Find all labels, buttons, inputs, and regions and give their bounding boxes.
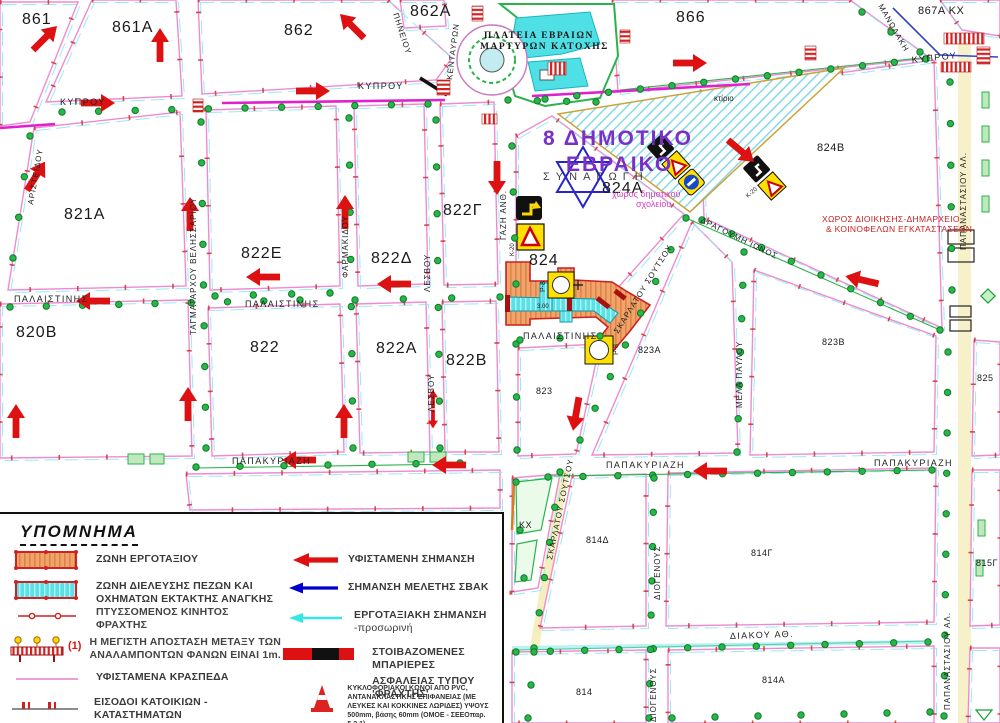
street-label: ΠΑΠΑΝΑΣΤΑΣΙΟΥ ΑΛ. — [959, 152, 968, 250]
legend-item-svak-signage: ΣΗΜΑΝΣΗ ΜΕΛΕΤΗΣ ΣΒΑΚ — [286, 580, 489, 596]
entrances-swatch — [10, 700, 80, 712]
school-name-line1: 8 ΔΗΜΟΤΙΚΟ — [543, 127, 693, 150]
street-label: ΠΑΛΑΙΣΤΙΝΗΣ — [14, 294, 89, 304]
street-label: ΠΑΠΑΝΑΣΤΑΣΙΟΥ ΑΛ. — [943, 612, 952, 710]
block-label: 823Β — [822, 337, 845, 347]
traffic-cone-icon — [308, 682, 335, 716]
cyan-arrow-left-icon — [286, 610, 344, 626]
street-label: ΜΕΛΑ ΠΑΥΛΟΥ — [735, 341, 744, 408]
street-label: ΛΕΣΒΟΥ — [427, 374, 436, 412]
block-label: ΚΧ — [519, 520, 532, 530]
work-zone-swatch — [14, 550, 80, 572]
street-label: ΔΙΟΓΕΝΟΥΣ — [649, 667, 658, 722]
block-label: 823Α — [638, 345, 661, 355]
street-label: ΠΑΠΑΚΥΡΙΑΖΗ — [232, 456, 311, 466]
street-label: ΔΙΟΓΕΝΟΥΣ — [653, 545, 662, 600]
block-label: 824 — [529, 252, 559, 269]
legend-item-temp-signage: ΕΡΓΟΤΑΞΙΑΚΗ ΣΗΜΑΝΣΗ -προσωρινή — [286, 610, 487, 635]
legend-item-ped-zone: ΖΩΝΗ ΔΙΕΛΕΥΣΗΣ ΠΕΖΩΝ ΚΑΙ ΟΧΗΜΑΤΩΝ ΕΚΤΑΚΤ… — [14, 580, 273, 606]
street-label: ΔΙΑΚΟΥ ΑΘ. — [730, 629, 794, 641]
sign-code-label: Ρ-8 — [613, 344, 620, 355]
block-label: 822Ε — [241, 245, 282, 262]
street-label: ΠΑΛΑΙΣΤΙΝΗΣ — [245, 299, 320, 309]
legend-item-number: (1) — [68, 640, 81, 652]
legend-item-work-zone: ΖΩΝΗ ΕΡΓΟΤΑΞΙΟΥ — [14, 550, 198, 572]
school-name-line2: ΕΒΡΑΙΚΟ — [566, 153, 673, 176]
curb-swatch — [14, 674, 80, 684]
block-label: 822 — [250, 339, 280, 356]
legend-panel: ΥΠΟΜΝΗΜΑ ΖΩΝΗ ΕΡΓΟΤΑΞΙΟΥ ΖΩΝΗ ΔΙΕΛΕΥΣΗΣ … — [0, 512, 504, 723]
street-label: ΓΑΖΗ ΑΝΘ. — [499, 190, 508, 240]
block-label: 861 — [22, 11, 52, 28]
legend-item-flashing-barrier: (1) Η ΜΕΓΙΣΤΗ ΑΠΟΣΤΑΣΗ ΜΕΤΑΞΥ ΤΩΝ ΑΝΑΛΑΜ… — [8, 634, 281, 664]
school-area-line2: σχολείου — [636, 199, 671, 209]
street-label: ΚΥΠΡΟΥ — [358, 81, 404, 91]
block-label: 821Α — [64, 206, 105, 223]
block-label: 820Β — [16, 324, 57, 341]
street-label: ΠΑΛΑΙΣΤΙΝΗΣ — [523, 331, 598, 341]
block-label: 822Β — [446, 352, 487, 369]
block-label: 822Δ — [371, 250, 412, 267]
street-label: ΤΑΓΜΑΤΑΡΧΟΥ ΒΕΛΗΣΣΑΡΙΟΥ — [189, 197, 198, 335]
block-label: 823 — [536, 386, 553, 396]
dimension-label: 3.00 — [537, 304, 549, 310]
block-label: 825 — [977, 373, 994, 383]
block-label: 822Α — [376, 340, 417, 357]
block-label: 814Γ — [751, 548, 773, 558]
school-area-line1: χώρος δημοτικού — [612, 189, 681, 199]
legend-item-traffic-cones: ΚΥΚΛΟΦΟΡΙΑΚΟΙ ΚΩΝΟΙ ΑΠΟ PVC, ΑΝΤΑΝΑΚΛΑΣΤ… — [308, 682, 502, 723]
block-label: 815Γ — [976, 558, 998, 568]
block-label: 866 — [676, 9, 706, 26]
green-diamond — [981, 289, 995, 303]
street-label: ΚΥΠΡΟΥ — [60, 97, 106, 107]
admin-area-line1: ΧΩΡΟΣ ΔΙΟΙΚΗΣΗΣ-ΔΗΜΑΡΧΕΙΟ — [822, 214, 960, 224]
block-label: 862 — [284, 22, 314, 39]
building-label: κτίριο — [714, 94, 734, 103]
block-label: 824Β — [817, 142, 845, 154]
legend-title: ΥΠΟΜΝΗΜΑ — [20, 522, 138, 546]
stacked-barrier-swatch — [282, 646, 354, 662]
sign-code-label: Ρ-8 — [540, 281, 547, 292]
legend-item-existing-signage: ΥΦΙΣΤΑΜΕΝΗ ΣΗΜΑΝΣΗ — [290, 552, 475, 568]
block-label: 861Α — [112, 19, 153, 36]
street-label: ΛΕΣΒΟΥ — [423, 254, 432, 292]
ped-zone-swatch — [14, 580, 80, 602]
mobile-fence-swatch — [14, 610, 80, 622]
red-arrow-left-icon — [290, 552, 340, 568]
legend-item-entrances: ΕΙΣΟΔΟΙ ΚΑΤΟΙΚΙΩΝ - ΚΑΤΑΣΤΗΜΑΤΩΝ — [10, 700, 208, 722]
flashing-barrier-icon — [8, 634, 68, 664]
block-label: 822Γ — [443, 202, 483, 219]
admin-area-line2: & ΚΟΙΝΟΦΕΛΩΝ ΕΓΚΑΤΑΣΤΑΣΕΩΝ — [826, 224, 972, 234]
blue-arrow-left-icon — [286, 580, 340, 596]
legend-item-curbs: ΥΦΙΣΤΑΜΕΝΑ ΚΡΑΣΠΕΔΑ — [14, 674, 229, 684]
street-label: ΦΑΡΜΑΚΙΔΟΥ — [341, 215, 350, 278]
block-label: 862Α — [410, 3, 451, 20]
square-name-line2: ΜΑΡΤΥΡΩΝ ΚΑΤΟΧΗΣ — [480, 42, 609, 52]
sign-code-label: Κ-20 — [510, 243, 516, 256]
square-name-line1: ΠΛΑΤΕΙΑ ΕΒΡΑΙΩΝ — [484, 31, 594, 41]
street-label: ΠΑΠΑΚΥΡΙΑΖΗ — [606, 460, 685, 470]
block-label: 814Α — [762, 675, 785, 685]
block-label: 867Α ΚΧ — [918, 5, 964, 17]
block-label: 814Δ — [586, 535, 609, 545]
block-label: 814 — [576, 687, 593, 697]
legend-item-mobile-fence: ΠΤΥΣΣΟΜΕΝΟΣ ΚΙΝΗΤΟΣ ΦΡΑΧΤΗΣ — [14, 610, 229, 632]
traffic-plan-map: { "map": { "block_labels": { "b861":"861… — [0, 0, 1000, 723]
street-label: ΠΑΠΑΚΥΡΙΑΖΗ — [874, 458, 953, 468]
